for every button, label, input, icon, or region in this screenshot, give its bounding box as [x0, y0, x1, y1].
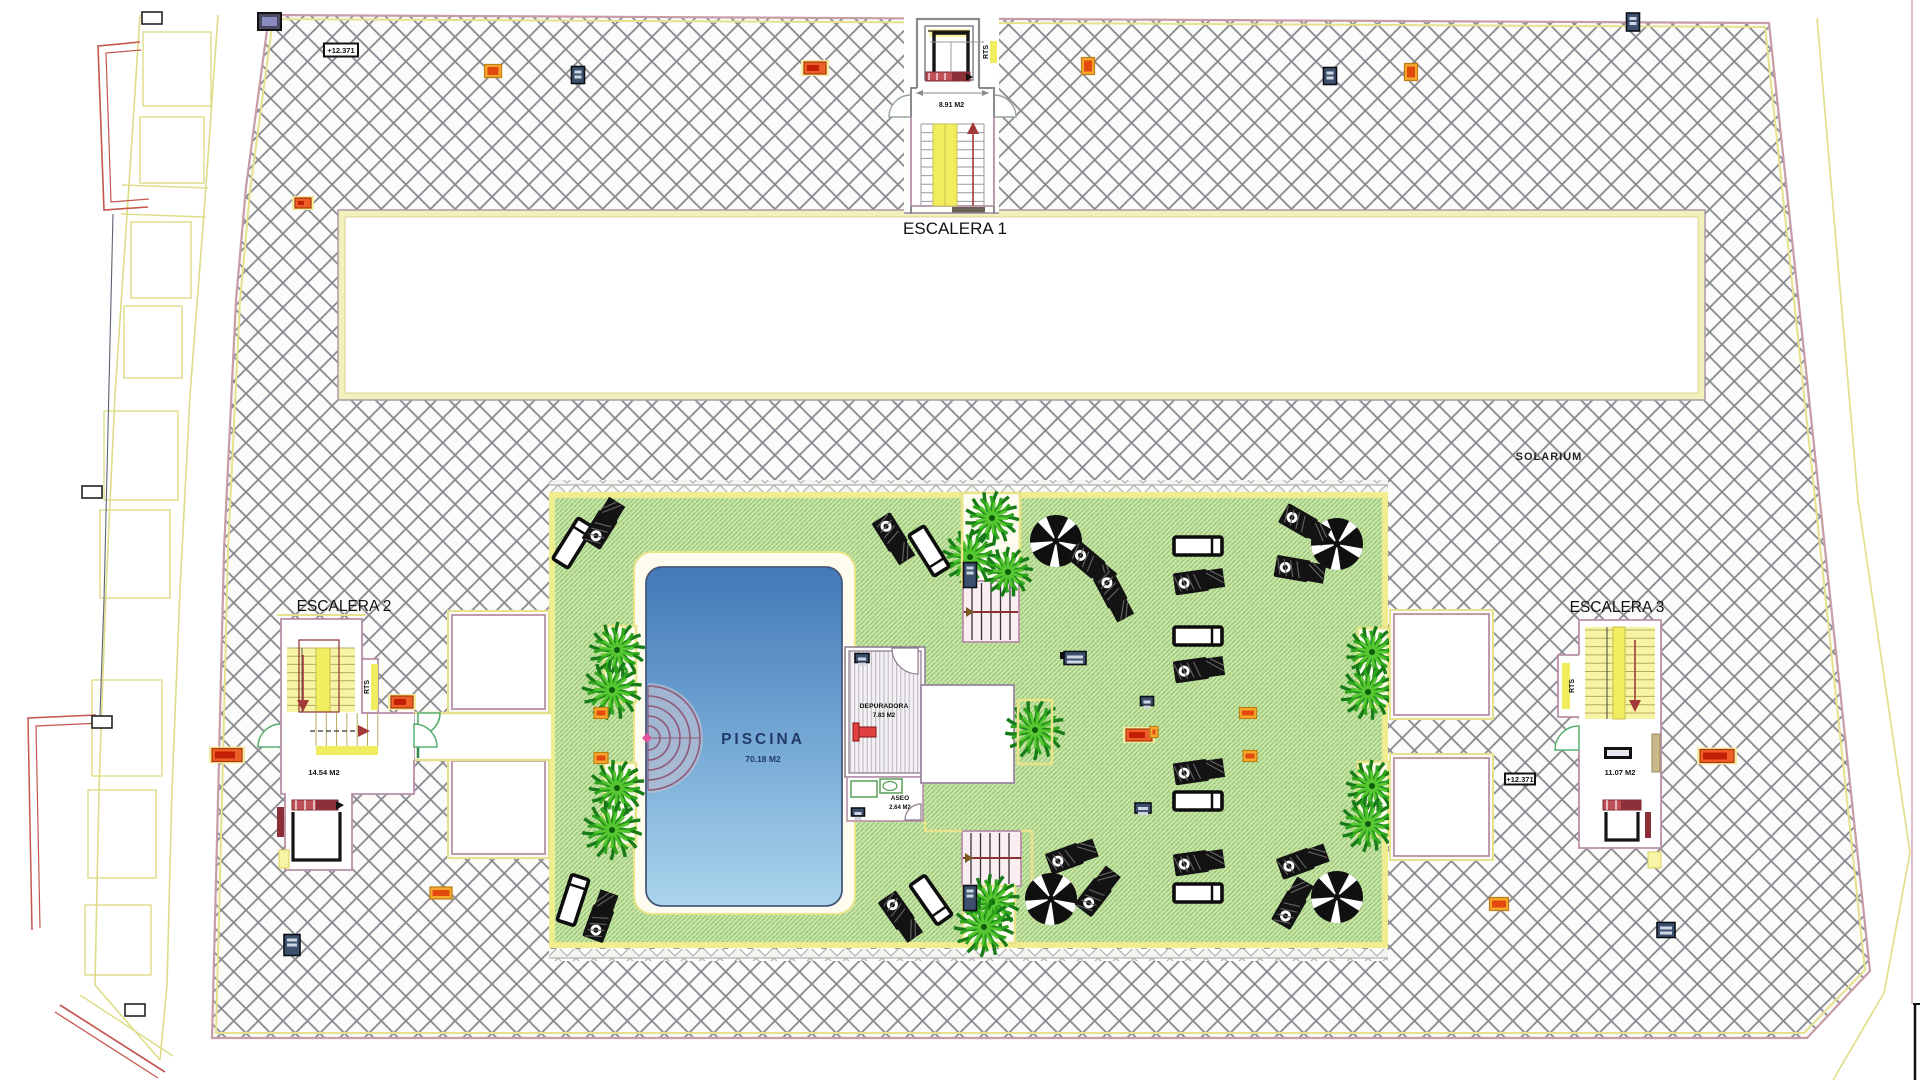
svg-text:+12.371: +12.371	[327, 46, 354, 55]
svg-text:7.83 M2: 7.83 M2	[873, 712, 896, 719]
svg-text:+12.371: +12.371	[1506, 775, 1533, 784]
svg-text:14.54 M2: 14.54 M2	[308, 768, 339, 777]
svg-text:SOLARIUM: SOLARIUM	[1516, 451, 1583, 463]
svg-text:PISCINA: PISCINA	[721, 731, 805, 748]
svg-text:70.18 M2: 70.18 M2	[745, 754, 781, 764]
svg-text:8.91 M2: 8.91 M2	[939, 102, 964, 109]
svg-text:11.07 M2: 11.07 M2	[1605, 768, 1636, 777]
svg-text:ESCALERA 3: ESCALERA 3	[1570, 599, 1665, 616]
svg-text:ASEO: ASEO	[891, 795, 909, 802]
svg-text:RTS: RTS	[1569, 679, 1576, 693]
svg-text:ESCALERA 2: ESCALERA 2	[297, 598, 392, 615]
svg-text:RTS: RTS	[983, 45, 990, 59]
svg-text:DEPURADORA: DEPURADORA	[860, 703, 909, 710]
svg-text:RTS: RTS	[364, 680, 371, 694]
svg-text:ESCALERA 1: ESCALERA 1	[903, 219, 1007, 238]
